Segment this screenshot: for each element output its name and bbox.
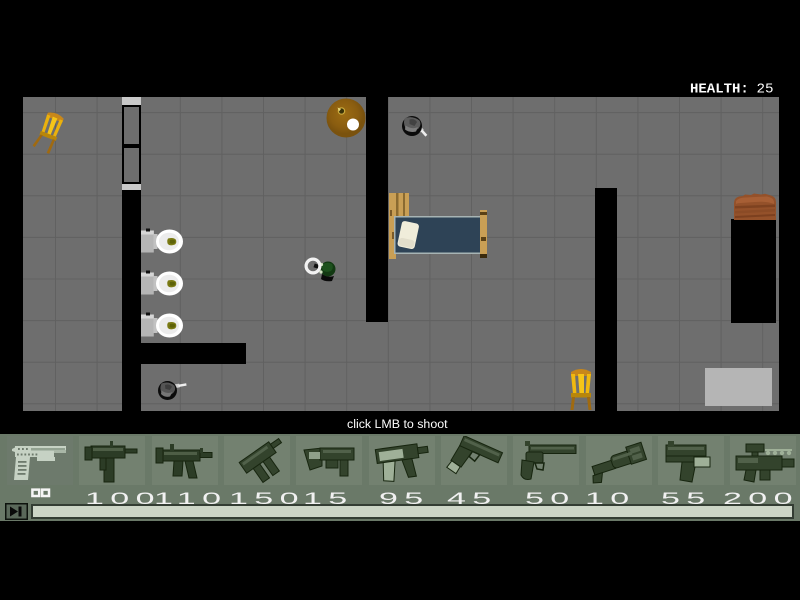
svg-text:click LMB to shoot: click LMB to shoot — [347, 417, 448, 431]
svg-text:25: 25 — [757, 82, 774, 98]
svg-text:HEALTH:: HEALTH: — [690, 82, 749, 98]
